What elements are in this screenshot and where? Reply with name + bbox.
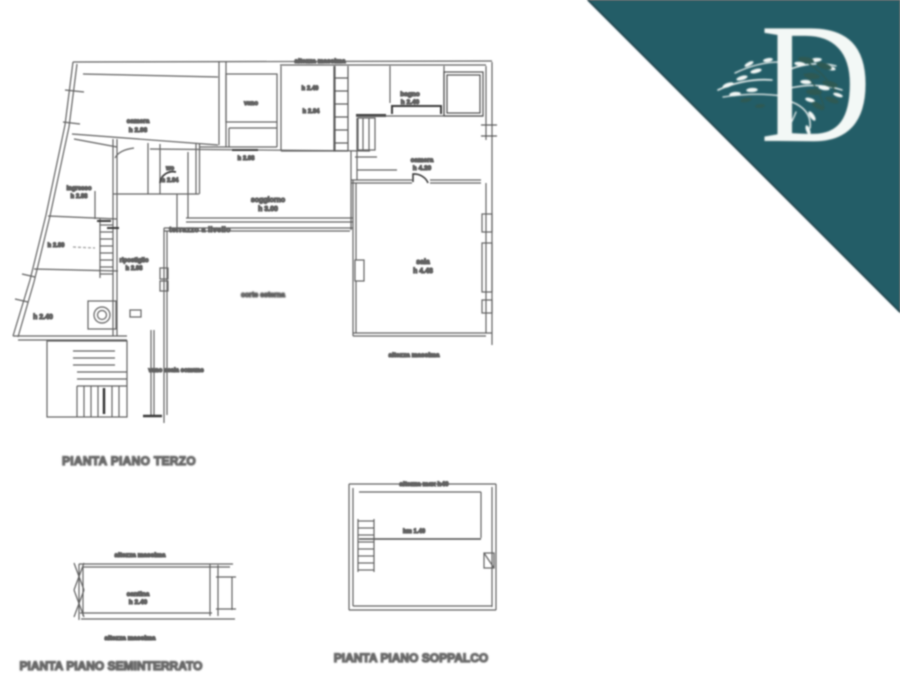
svg-text:camera: camera: [411, 157, 434, 164]
svg-text:altezza massima: altezza massima: [389, 352, 440, 359]
svg-text:h 2.84: h 2.84: [161, 178, 179, 184]
svg-text:bagno: bagno: [400, 91, 420, 98]
svg-text:h 2.88: h 2.88: [70, 194, 88, 200]
svg-text:PIANTA PIANO SOPPALCO: PIANTA PIANO SOPPALCO: [334, 651, 488, 665]
svg-text:cantina: cantina: [127, 591, 150, 598]
svg-text:h 2.40: h 2.40: [33, 314, 53, 321]
svg-text:PIANTA PIANO TERZO: PIANTA PIANO TERZO: [62, 454, 196, 468]
svg-text:soggiorno: soggiorno: [251, 197, 285, 204]
svg-text:h 2.98: h 2.98: [237, 156, 255, 162]
svg-text:h 2.40: h 2.40: [301, 86, 319, 92]
svg-text:h 4.48: h 4.48: [413, 268, 433, 275]
svg-text:sala: sala: [416, 259, 430, 266]
svg-text:corte esterna: corte esterna: [241, 292, 285, 299]
svg-text:altezza massima: altezza massima: [105, 635, 156, 642]
svg-text:vano scala comune: vano scala comune: [148, 368, 204, 374]
svg-text:h 2.98: h 2.98: [129, 127, 148, 134]
svg-text:altezza massima: altezza massima: [295, 58, 346, 65]
svg-text:altezza massima: altezza massima: [115, 552, 166, 559]
svg-text:ripostiglio: ripostiglio: [120, 258, 149, 264]
svg-text:h 4.20: h 4.20: [413, 165, 432, 172]
svg-text:h 2.84: h 2.84: [302, 109, 320, 115]
svg-text:hm 1.40: hm 1.40: [403, 529, 426, 535]
svg-text:terrazzo a livello: terrazzo a livello: [169, 227, 231, 234]
svg-text:PIANTA PIANO SEMINTERRATO: PIANTA PIANO SEMINTERRATO: [20, 659, 203, 673]
svg-text:h 2.40: h 2.40: [129, 599, 148, 606]
svg-text:h 2.40: h 2.40: [401, 99, 420, 106]
svg-text:wc: wc: [165, 166, 175, 172]
svg-text:h 2.98: h 2.98: [125, 266, 143, 272]
svg-text:h 3.00: h 3.00: [258, 206, 278, 213]
svg-text:ingresso: ingresso: [66, 186, 91, 192]
svg-text:h 2.80: h 2.80: [47, 243, 65, 249]
svg-text:vano: vano: [244, 101, 258, 107]
svg-text:camera: camera: [127, 118, 150, 125]
